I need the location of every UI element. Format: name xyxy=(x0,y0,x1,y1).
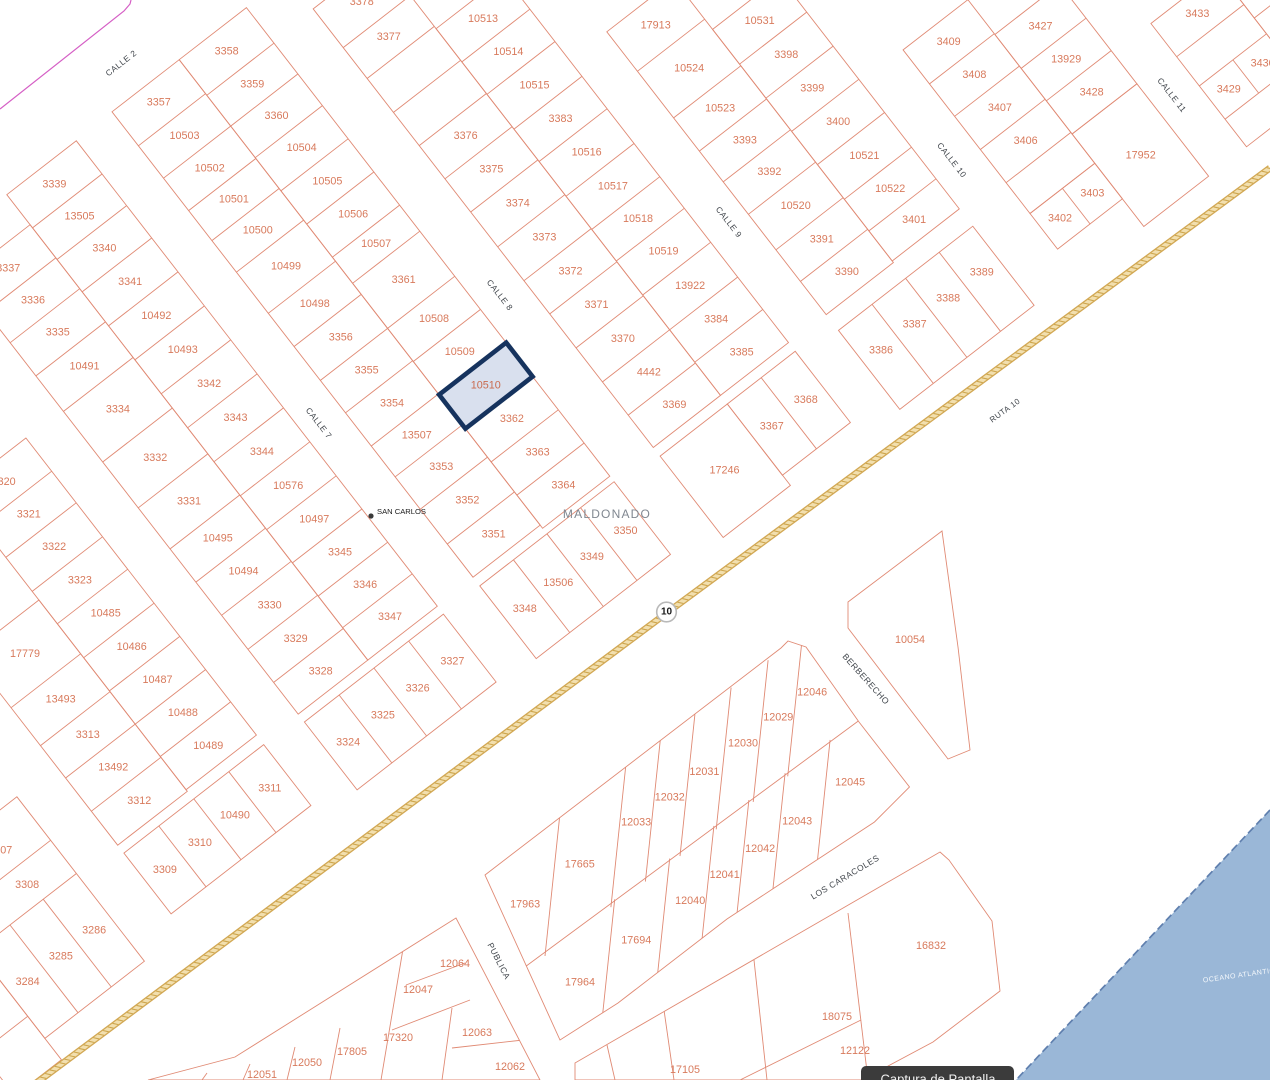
svg-text:10489: 10489 xyxy=(193,740,223,752)
svg-text:3389: 3389 xyxy=(970,266,994,278)
svg-text:3343: 3343 xyxy=(223,412,247,424)
svg-text:3385: 3385 xyxy=(730,346,754,358)
svg-text:3377: 3377 xyxy=(377,31,401,43)
svg-text:10497: 10497 xyxy=(299,513,329,525)
svg-text:3342: 3342 xyxy=(197,378,221,390)
svg-text:3406: 3406 xyxy=(1014,135,1038,147)
svg-text:10513: 10513 xyxy=(468,13,498,25)
svg-text:3390: 3390 xyxy=(835,266,859,278)
svg-text:3330: 3330 xyxy=(258,599,282,611)
svg-text:3354: 3354 xyxy=(380,397,404,409)
svg-text:17779: 17779 xyxy=(10,648,40,660)
svg-text:3340: 3340 xyxy=(92,243,116,255)
svg-text:3407: 3407 xyxy=(988,102,1012,114)
svg-text:10516: 10516 xyxy=(572,147,602,159)
svg-text:10515: 10515 xyxy=(519,79,549,91)
svg-text:3372: 3372 xyxy=(558,265,582,277)
svg-text:10521: 10521 xyxy=(849,150,879,162)
svg-text:10488: 10488 xyxy=(168,707,198,719)
svg-text:3387: 3387 xyxy=(903,319,927,331)
svg-text:3355: 3355 xyxy=(355,365,379,377)
svg-text:10518: 10518 xyxy=(623,213,653,225)
svg-text:12122: 12122 xyxy=(840,1045,870,1057)
svg-text:3309: 3309 xyxy=(153,864,177,876)
svg-text:3311: 3311 xyxy=(258,783,281,795)
svg-text:12063: 12063 xyxy=(462,1027,492,1039)
svg-text:10523: 10523 xyxy=(705,102,735,114)
svg-text:3349: 3349 xyxy=(580,551,604,563)
svg-text:3339: 3339 xyxy=(42,178,66,190)
svg-text:12043: 12043 xyxy=(782,816,812,828)
svg-text:Captura de Pantalla: Captura de Pantalla xyxy=(881,1072,997,1080)
svg-text:3286: 3286 xyxy=(82,925,106,937)
svg-text:12047: 12047 xyxy=(403,984,433,996)
svg-text:3388: 3388 xyxy=(936,293,960,305)
svg-text:3383: 3383 xyxy=(548,113,572,125)
svg-text:3362: 3362 xyxy=(500,413,524,425)
svg-text:10519: 10519 xyxy=(648,246,678,258)
svg-text:10524: 10524 xyxy=(674,63,704,75)
svg-text:10487: 10487 xyxy=(142,674,172,686)
svg-text:10494: 10494 xyxy=(228,566,258,578)
svg-text:10495: 10495 xyxy=(203,533,233,545)
svg-text:3402: 3402 xyxy=(1048,213,1072,225)
svg-text:10520: 10520 xyxy=(781,200,811,212)
svg-text:10522: 10522 xyxy=(875,183,905,195)
svg-text:3373: 3373 xyxy=(532,232,556,244)
svg-text:10510: 10510 xyxy=(471,380,501,392)
svg-text:3399: 3399 xyxy=(800,83,824,95)
svg-text:3335: 3335 xyxy=(46,326,70,338)
svg-text:12033: 12033 xyxy=(621,817,651,829)
svg-text:10517: 10517 xyxy=(598,181,628,193)
svg-text:12031: 12031 xyxy=(689,766,719,778)
svg-text:4442: 4442 xyxy=(637,366,661,378)
svg-text:3344: 3344 xyxy=(250,446,274,458)
svg-text:10054: 10054 xyxy=(895,634,925,646)
svg-text:13492: 13492 xyxy=(98,762,128,774)
svg-text:3401: 3401 xyxy=(902,214,926,226)
svg-text:12032: 12032 xyxy=(655,792,685,804)
svg-text:3331: 3331 xyxy=(177,495,201,507)
svg-text:12030: 12030 xyxy=(728,738,758,750)
svg-text:3393: 3393 xyxy=(733,134,757,146)
svg-text:13929: 13929 xyxy=(1051,54,1081,66)
svg-text:12064: 12064 xyxy=(440,958,470,970)
svg-text:3364: 3364 xyxy=(551,480,575,492)
svg-text:10502: 10502 xyxy=(195,162,225,174)
svg-text:10493: 10493 xyxy=(168,344,198,356)
svg-text:3322: 3322 xyxy=(42,541,66,553)
svg-text:17805: 17805 xyxy=(337,1046,367,1058)
svg-text:3346: 3346 xyxy=(353,579,377,591)
svg-text:3321: 3321 xyxy=(17,508,41,520)
svg-text:3320: 3320 xyxy=(0,476,16,488)
svg-text:10485: 10485 xyxy=(91,608,121,620)
svg-text:3368: 3368 xyxy=(794,394,818,406)
svg-text:10: 10 xyxy=(661,607,673,618)
svg-text:3285: 3285 xyxy=(49,950,73,962)
svg-text:10531: 10531 xyxy=(745,15,775,27)
svg-text:3328: 3328 xyxy=(309,665,333,677)
svg-text:17246: 17246 xyxy=(709,465,739,477)
svg-text:17665: 17665 xyxy=(565,858,595,870)
svg-text:3332: 3332 xyxy=(143,452,167,464)
svg-text:3310: 3310 xyxy=(188,837,212,849)
svg-text:10514: 10514 xyxy=(493,46,523,58)
svg-text:3428: 3428 xyxy=(1080,86,1104,98)
svg-text:3350: 3350 xyxy=(613,525,637,537)
svg-text:16832: 16832 xyxy=(916,940,946,952)
svg-text:3348: 3348 xyxy=(513,603,537,615)
svg-text:3337: 3337 xyxy=(0,262,20,274)
svg-text:3430: 3430 xyxy=(1251,58,1270,70)
svg-text:10504: 10504 xyxy=(287,142,317,154)
svg-text:MALDONADO: MALDONADO xyxy=(563,507,651,521)
svg-text:13505: 13505 xyxy=(64,211,94,223)
svg-text:17964: 17964 xyxy=(565,976,595,988)
svg-text:3358: 3358 xyxy=(215,45,239,57)
svg-text:10576: 10576 xyxy=(273,480,303,492)
svg-text:3429: 3429 xyxy=(1217,84,1241,96)
svg-text:10490: 10490 xyxy=(220,810,250,822)
svg-text:3345: 3345 xyxy=(328,547,352,559)
svg-text:3370: 3370 xyxy=(611,333,635,345)
svg-text:10491: 10491 xyxy=(69,361,99,373)
svg-text:13506: 13506 xyxy=(543,577,573,589)
svg-text:3325: 3325 xyxy=(371,710,395,722)
svg-text:10486: 10486 xyxy=(117,641,147,653)
svg-text:12041: 12041 xyxy=(710,869,740,881)
svg-text:10508: 10508 xyxy=(419,313,449,325)
svg-text:3336: 3336 xyxy=(21,294,45,306)
svg-text:3284: 3284 xyxy=(16,976,40,988)
svg-text:17913: 17913 xyxy=(641,20,671,32)
svg-text:10506: 10506 xyxy=(338,209,368,221)
svg-text:3398: 3398 xyxy=(774,49,798,61)
svg-text:3427: 3427 xyxy=(1028,20,1052,32)
svg-text:12051: 12051 xyxy=(247,1069,277,1080)
svg-text:3327: 3327 xyxy=(440,656,464,668)
svg-text:17952: 17952 xyxy=(1126,150,1156,162)
svg-text:10507: 10507 xyxy=(361,238,391,250)
svg-text:3323: 3323 xyxy=(68,574,92,586)
svg-text:3360: 3360 xyxy=(264,110,288,122)
svg-text:3347: 3347 xyxy=(378,611,402,623)
svg-text:3375: 3375 xyxy=(479,163,503,175)
svg-text:3400: 3400 xyxy=(826,116,850,128)
svg-text:3392: 3392 xyxy=(757,166,781,178)
svg-text:13922: 13922 xyxy=(675,280,705,292)
svg-text:3361: 3361 xyxy=(392,274,416,286)
svg-text:3357: 3357 xyxy=(147,97,171,109)
svg-text:3326: 3326 xyxy=(406,683,430,695)
svg-text:3369: 3369 xyxy=(662,399,686,411)
svg-text:3351: 3351 xyxy=(482,529,506,541)
svg-text:3324: 3324 xyxy=(336,736,360,748)
svg-text:3386: 3386 xyxy=(869,345,893,357)
svg-text:12029: 12029 xyxy=(763,711,793,723)
svg-text:10500: 10500 xyxy=(243,224,273,236)
svg-text:10492: 10492 xyxy=(141,310,171,322)
svg-text:12062: 12062 xyxy=(495,1061,525,1073)
svg-text:3363: 3363 xyxy=(526,446,550,458)
svg-text:12046: 12046 xyxy=(797,686,827,698)
svg-text:17963: 17963 xyxy=(510,899,540,911)
svg-text:3341: 3341 xyxy=(118,276,142,288)
svg-text:3378: 3378 xyxy=(350,0,374,8)
svg-text:3408: 3408 xyxy=(962,69,986,81)
svg-text:3376: 3376 xyxy=(454,130,478,142)
svg-text:3433: 3433 xyxy=(1185,8,1209,20)
svg-text:10501: 10501 xyxy=(219,194,249,206)
svg-text:10499: 10499 xyxy=(271,261,301,273)
svg-text:3371: 3371 xyxy=(584,299,608,311)
svg-text:12045: 12045 xyxy=(835,776,865,788)
svg-text:10505: 10505 xyxy=(312,175,342,187)
svg-text:3384: 3384 xyxy=(704,314,728,326)
svg-text:3334: 3334 xyxy=(106,404,130,416)
svg-text:SAN CARLOS: SAN CARLOS xyxy=(377,507,426,516)
svg-text:18075: 18075 xyxy=(822,1011,852,1023)
svg-text:3312: 3312 xyxy=(127,795,151,807)
svg-text:10498: 10498 xyxy=(300,298,330,310)
svg-text:3374: 3374 xyxy=(506,197,530,209)
svg-text:3356: 3356 xyxy=(329,331,353,343)
svg-text:3352: 3352 xyxy=(455,495,479,507)
svg-text:17694: 17694 xyxy=(621,935,651,947)
svg-text:3409: 3409 xyxy=(937,36,961,48)
svg-text:12042: 12042 xyxy=(745,843,775,855)
svg-text:3329: 3329 xyxy=(284,633,308,645)
svg-text:12050: 12050 xyxy=(292,1057,322,1069)
svg-text:3391: 3391 xyxy=(810,234,834,246)
svg-text:12040: 12040 xyxy=(675,895,705,907)
svg-text:17320: 17320 xyxy=(383,1032,413,1044)
svg-text:3353: 3353 xyxy=(429,461,453,473)
svg-text:10503: 10503 xyxy=(169,130,199,142)
svg-text:3307: 3307 xyxy=(0,844,12,856)
svg-text:13507: 13507 xyxy=(402,429,432,441)
svg-text:13493: 13493 xyxy=(46,694,76,706)
svg-text:3367: 3367 xyxy=(760,420,784,432)
svg-text:3313: 3313 xyxy=(76,729,100,741)
svg-text:10509: 10509 xyxy=(445,346,475,358)
svg-text:3308: 3308 xyxy=(15,879,39,891)
svg-text:17105: 17105 xyxy=(670,1064,700,1076)
svg-text:3403: 3403 xyxy=(1080,188,1104,200)
svg-text:3359: 3359 xyxy=(240,79,264,91)
